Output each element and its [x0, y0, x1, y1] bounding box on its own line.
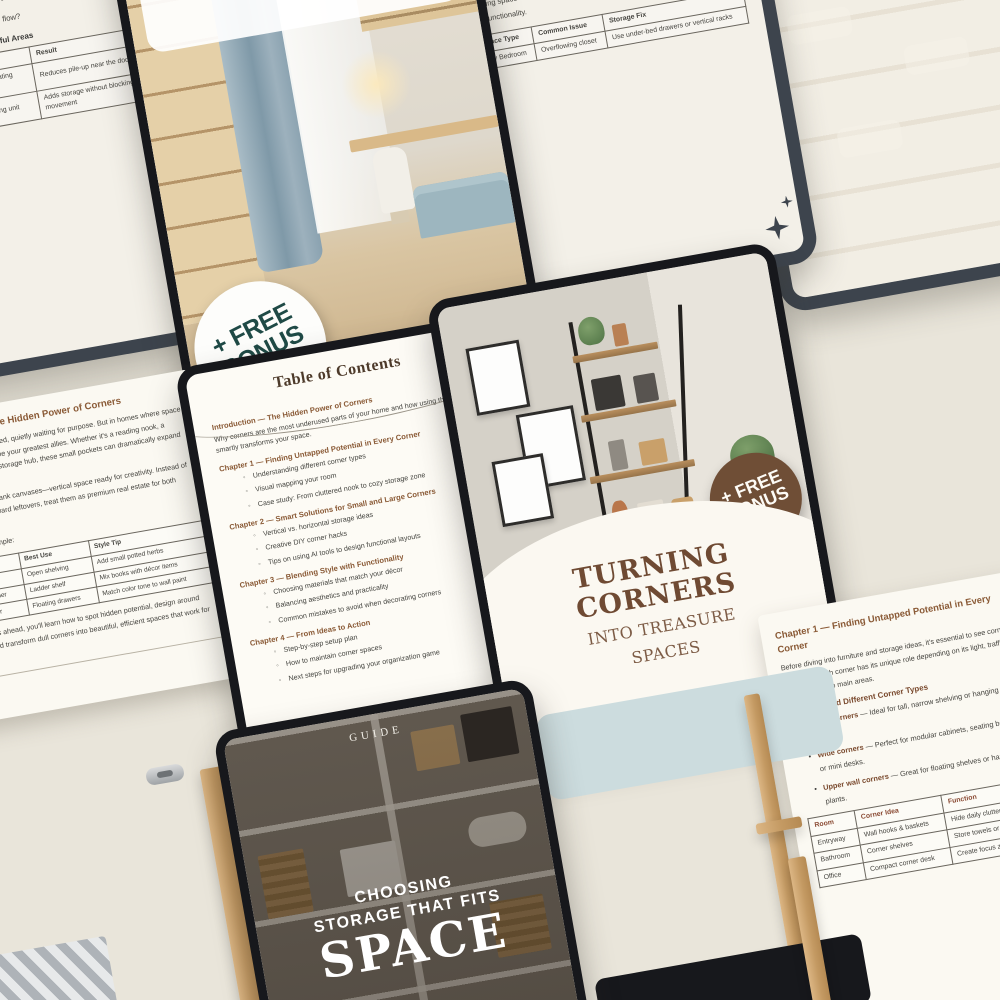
- jar: [638, 438, 668, 466]
- striped-fabric-decor: [0, 936, 124, 1000]
- bench-seat: [412, 171, 516, 239]
- cover-subtitle: In Tight Spaces: [137, 0, 453, 6]
- bullet-lead: Upper wall corners: [822, 772, 889, 792]
- mockup-collage: smart furniture, integrate setup over ti…: [0, 0, 1000, 1000]
- tablet-screen: GUIDE CHOOSING STORAGE THAT FITS SPACE: [223, 688, 595, 1000]
- clipboard-clip: [145, 763, 185, 786]
- vase: [608, 439, 629, 471]
- books: [633, 373, 660, 404]
- sparkle-icon: [780, 195, 794, 209]
- picture-frame: [491, 453, 554, 527]
- sparkle-icon: [763, 214, 791, 242]
- picture-frame: [465, 340, 530, 416]
- table-cell: Install corner shelving unit: [0, 91, 42, 137]
- vase: [612, 323, 630, 347]
- clip-hole: [157, 770, 174, 779]
- books: [591, 374, 626, 411]
- potted-plant: [576, 315, 606, 347]
- tablet-bezel-decor: [594, 933, 872, 1000]
